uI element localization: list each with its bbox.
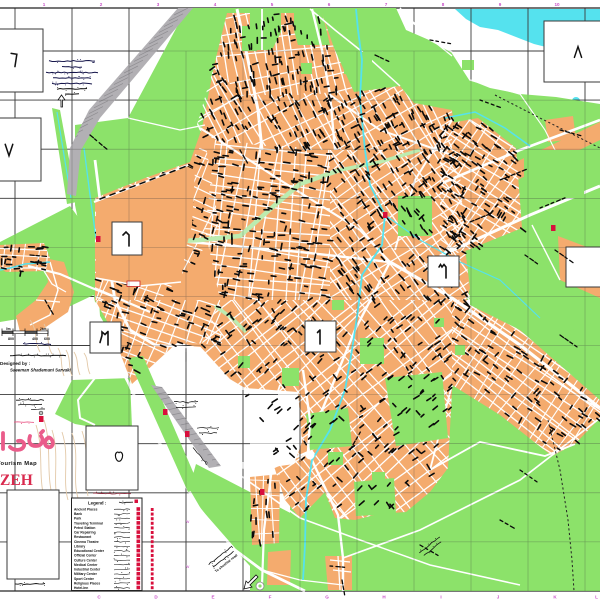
svg-text:Restaurant: Restaurant [74,535,92,539]
svg-text:Cinema Theatre: Cinema Theatre [74,540,99,544]
svg-text:Official Center: Official Center [74,554,97,558]
svg-text:Military Center: Military Center [74,572,98,576]
svg-text:Religious Places: Religious Places [74,581,100,585]
svg-text:E: E [211,595,214,600]
svg-text:Traveling Terminal: Traveling Terminal [74,521,103,525]
svg-text:9: 9 [499,2,502,7]
svg-text:Library: Library [74,545,85,549]
svg-text:5: 5 [271,2,274,7]
svg-text:Culture Center: Culture Center [74,558,98,562]
svg-text:10: 10 [554,2,560,7]
svg-text:Sport Center: Sport Center [74,577,95,581]
svg-text:Saeeman Shademani Sarvaki: Saeeman Shademani Sarvaki [10,368,72,373]
svg-text:Hotel-Inn: Hotel-Inn [74,586,88,590]
svg-text:J: J [497,595,500,600]
svg-text:6: 6 [328,2,331,7]
svg-text:7: 7 [385,2,388,7]
svg-text:IZEH: IZEH [0,472,33,489]
svg-text:I: I [440,595,441,600]
svg-text:4: 4 [214,2,217,7]
svg-text:Bank: Bank [74,512,82,516]
svg-text:8: 8 [442,2,445,7]
svg-text:Car Repairing: Car Repairing [74,531,96,535]
svg-text:400: 400 [32,337,38,341]
svg-text:Educational Center: Educational Center [74,549,105,553]
svg-text:Ancient Places: Ancient Places [74,508,98,512]
svg-text:600: 600 [44,337,50,341]
svg-text:Tourism Map: Tourism Map [0,461,37,467]
svg-text:Legend :: Legend : [88,501,107,506]
svg-text:2: 2 [100,2,103,7]
svg-text:L: L [595,595,598,600]
svg-text:Industrial Center: Industrial Center [74,568,101,572]
svg-text:G: G [325,595,329,600]
svg-text:2km: 2km [40,327,47,331]
svg-text:0m: 0m [6,327,11,331]
svg-text:Park: Park [74,517,81,521]
svg-text:Petrol Station: Petrol Station [74,526,95,530]
svg-text:F: F [269,595,272,600]
svg-text:Medical Center: Medical Center [74,563,98,567]
svg-text:800: 800 [8,337,14,341]
svg-text:1: 1 [43,2,46,7]
svg-text:3: 3 [157,2,160,7]
svg-text:Designed by :: Designed by : [0,361,31,366]
